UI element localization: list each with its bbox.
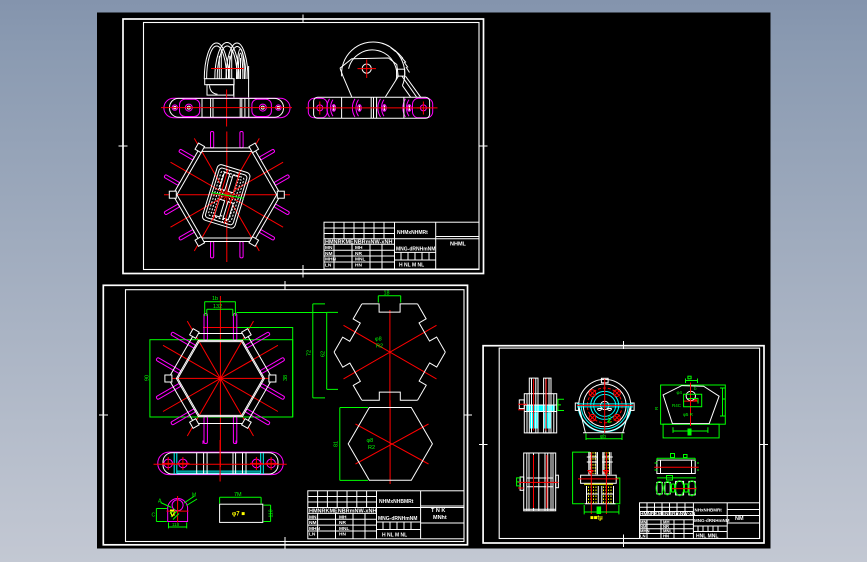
svg-text:MHN: MHN [325, 257, 336, 263]
svg-text:MNL: MNL [355, 257, 365, 263]
svg-text:A: A [158, 499, 162, 505]
svg-text:NHMxNHBMRt: NHMxNHBMRt [379, 499, 414, 505]
svg-text:NM: NM [309, 520, 316, 526]
svg-text:MN: MN [309, 514, 317, 520]
svg-text:MN: MN [325, 245, 333, 251]
svg-text:NHML: NHML [450, 242, 467, 248]
svg-text:NR: NR [339, 520, 346, 526]
svg-text:H NL M NL: H NL M NL [382, 533, 407, 539]
svg-text:NHMxNHMRt: NHMxNHMRt [397, 230, 428, 236]
svg-text:NM: NM [735, 516, 744, 522]
svg-text:H NL M NL: H NL M NL [399, 263, 424, 269]
svg-text:HMNRKMENBRmNW-xN: HMNRKMENBRmNW-xN [640, 511, 696, 517]
svg-text:T N K: T N K [431, 508, 445, 514]
svg-text:MHN: MHN [309, 526, 320, 532]
svg-text:132: 132 [213, 304, 222, 310]
svg-text:HMNRKMENBRmNW-xNH: HMNRKMENBRmNW-xNH [309, 509, 376, 515]
svg-text:φ4: φ4 [677, 390, 683, 395]
svg-text:38: 38 [283, 375, 289, 381]
svg-text:1b: 1b [212, 296, 218, 302]
svg-text:HMNRKMENBRmNW-xNH: HMNRKMENBRmNW-xNH [325, 240, 392, 246]
svg-text:R4C: R4C [672, 403, 682, 408]
svg-text:NR: NR [355, 251, 362, 257]
svg-text:81: 81 [334, 441, 340, 447]
svg-text:LN: LN [325, 262, 332, 268]
svg-text:φ8: φ8 [367, 438, 374, 444]
svg-text:MNG-dRNHmNM: MNG-dRNHmNM [378, 516, 417, 522]
svg-text:90: 90 [145, 375, 151, 381]
svg-text:7M: 7M [234, 492, 242, 498]
svg-text:C: C [152, 513, 156, 519]
svg-text:R2: R2 [368, 445, 375, 451]
svg-text:φ5 R: φ5 R [683, 412, 694, 417]
svg-text:■■tµ: ■■tµ [590, 516, 603, 522]
svg-text:MNL: MNL [339, 526, 349, 532]
svg-text:LN: LN [309, 532, 316, 538]
svg-text:HN: HN [355, 262, 362, 268]
svg-text:φ8: φ8 [375, 337, 382, 343]
svg-text:MH: MH [355, 245, 363, 251]
svg-text:MH: MH [339, 514, 347, 520]
svg-text:M: M [192, 493, 196, 499]
svg-text:18: 18 [384, 291, 390, 297]
svg-text:φb: φb [600, 434, 606, 440]
svg-text:NHxNHBMRt: NHxNHBMRt [695, 508, 723, 513]
svg-text:LN: LN [640, 533, 646, 538]
svg-text:62: 62 [321, 351, 327, 357]
svg-text:MNG-dRNHmNM: MNG-dRNHmNM [396, 247, 435, 253]
svg-text:72: 72 [307, 350, 313, 356]
svg-text:R2: R2 [376, 344, 383, 350]
svg-text:C: C [608, 416, 612, 422]
svg-text:MNG-dRNHmNM: MNG-dRNHmNM [694, 518, 730, 523]
svg-text:MNht: MNht [433, 515, 447, 521]
svg-text:118: 118 [172, 522, 180, 527]
svg-text:HNL MNL: HNL MNL [696, 534, 718, 540]
svg-text:110: 110 [269, 509, 275, 517]
svg-text:HN: HN [339, 532, 346, 538]
svg-text:φ7 ■: φ7 ■ [232, 512, 245, 518]
svg-text:NM: NM [325, 251, 332, 257]
svg-text:HN: HN [663, 533, 669, 538]
